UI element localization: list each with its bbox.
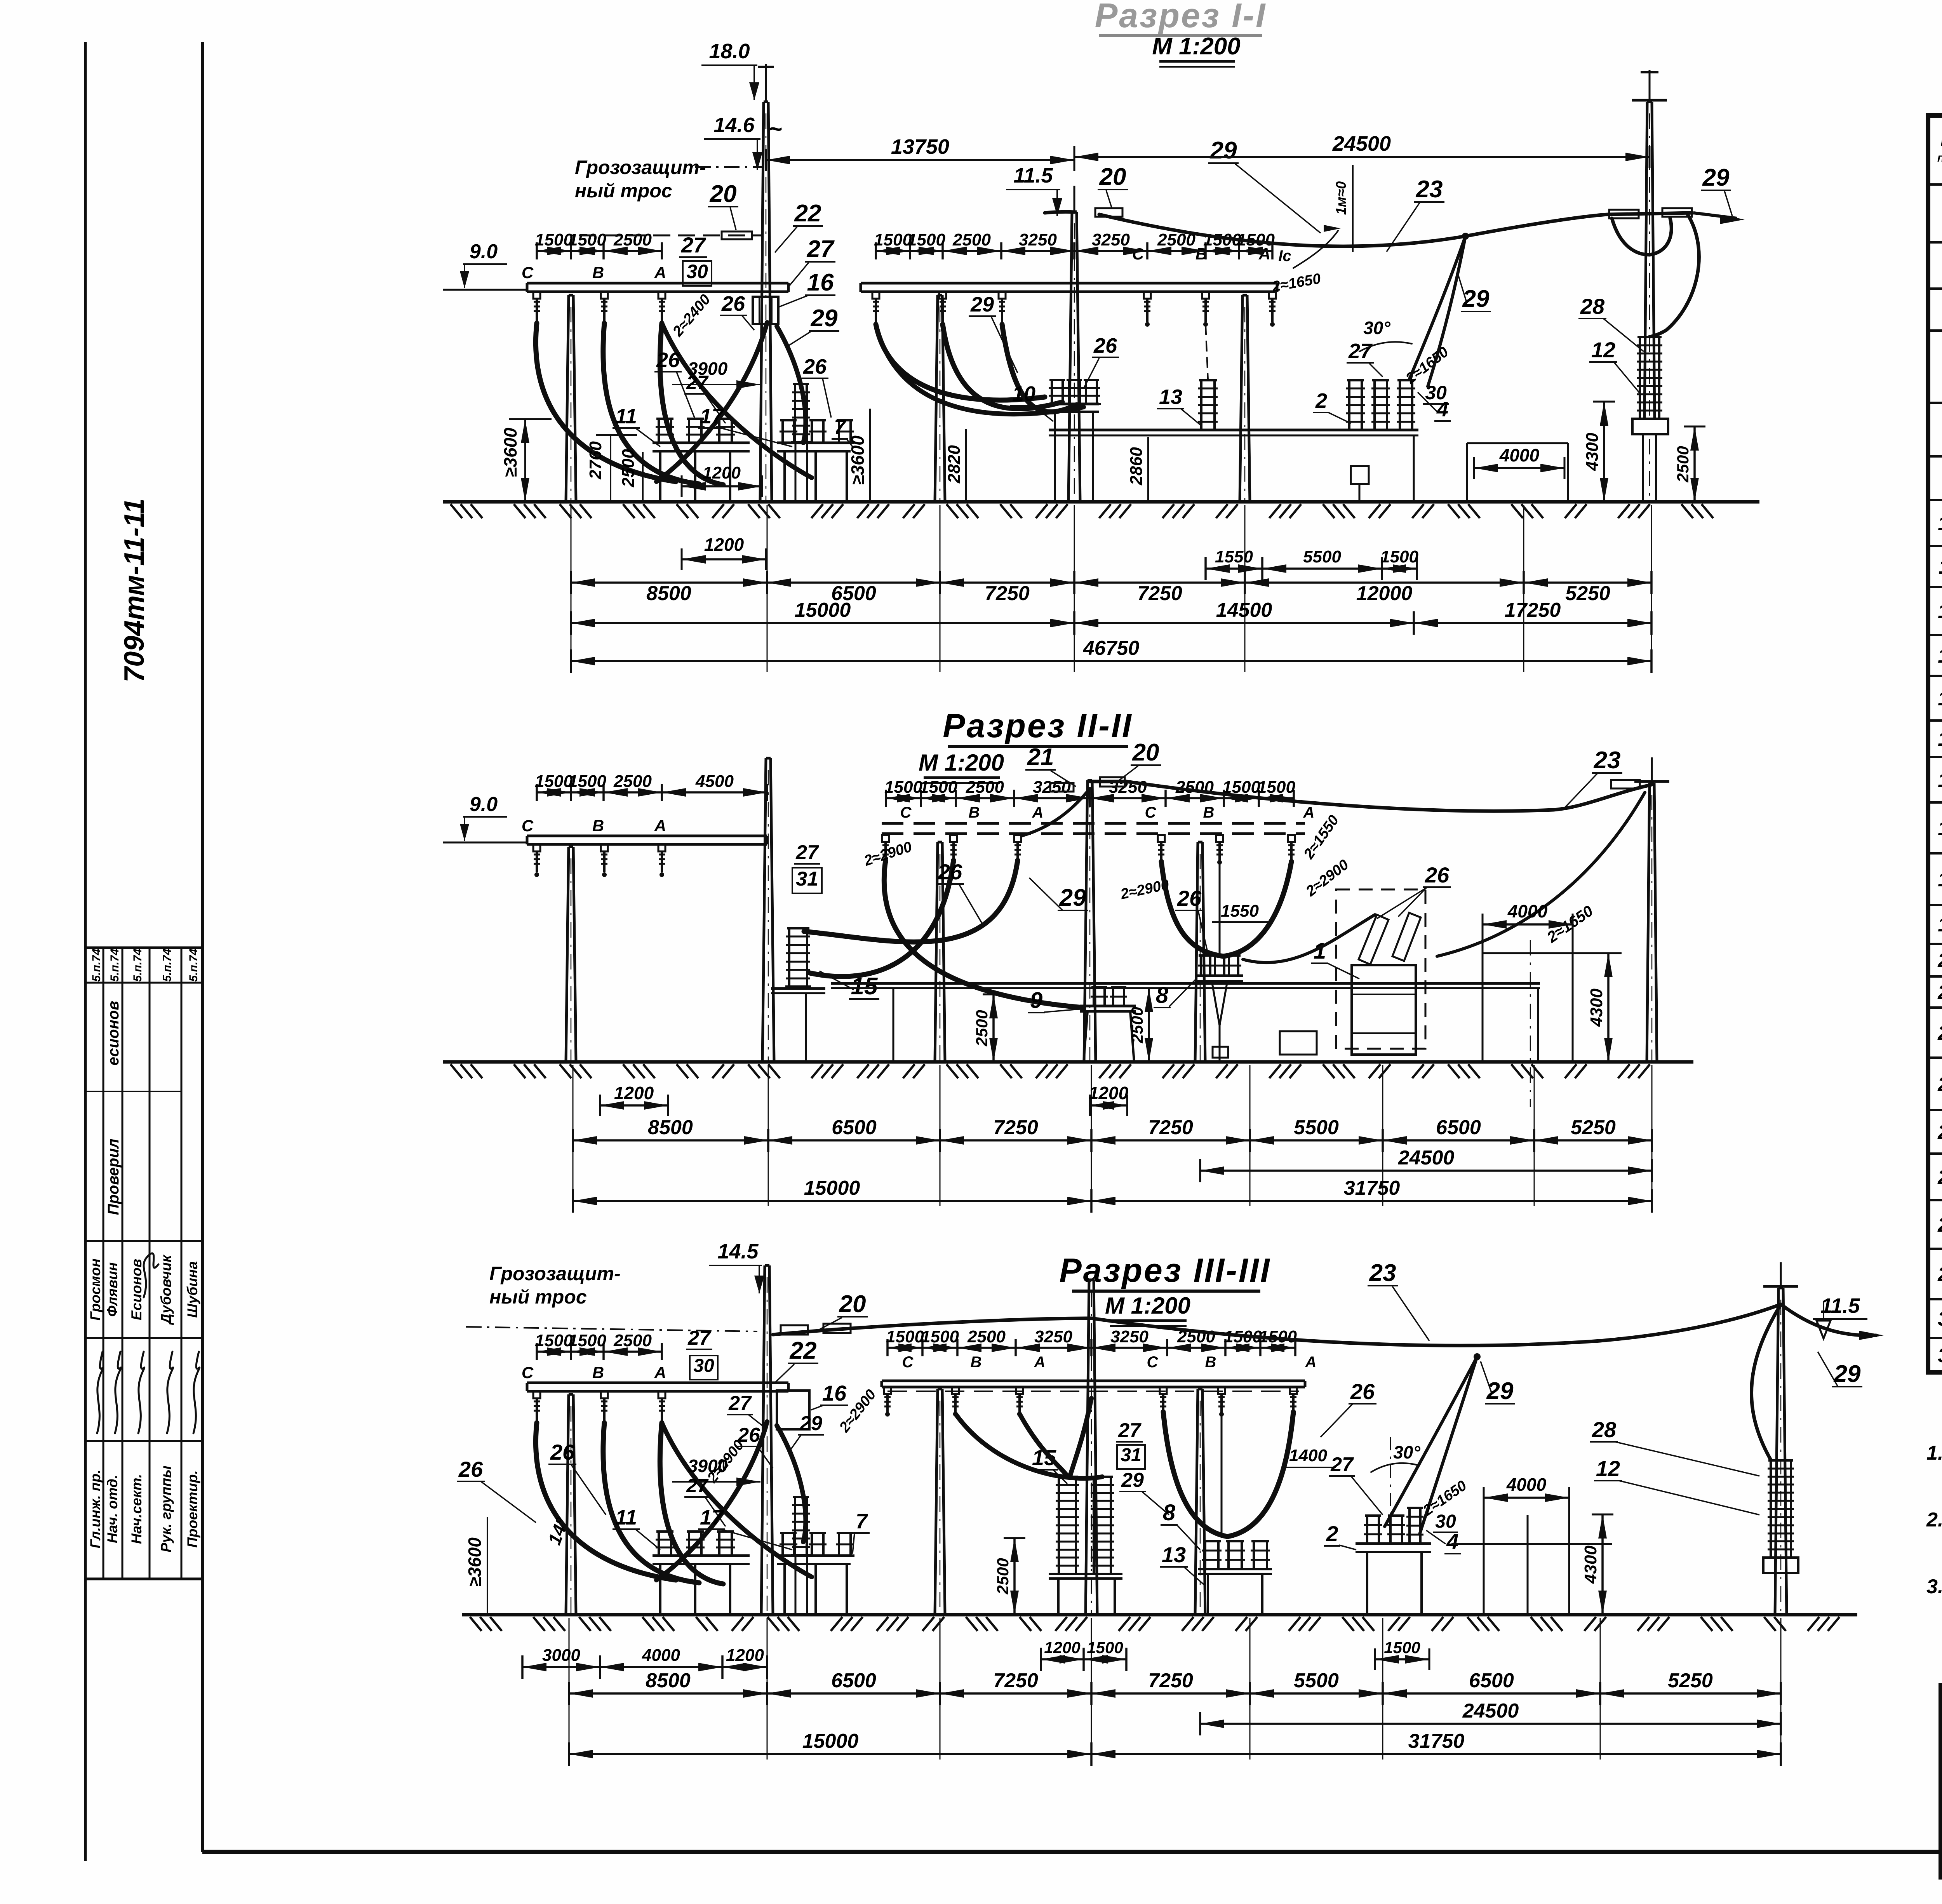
svg-text:1200: 1200 — [704, 534, 744, 555]
svg-text:14.5: 14.5 — [717, 1240, 759, 1263]
svg-text:1500: 1500 — [568, 772, 606, 791]
svg-text:есионов: есионов — [105, 1001, 122, 1066]
svg-text:4000: 4000 — [1499, 445, 1540, 465]
svg-text:23: 23 — [1416, 176, 1443, 203]
svg-text:C: C — [522, 263, 534, 282]
svg-text:5500: 5500 — [1294, 1669, 1339, 1692]
svg-text:10: 10 — [1012, 382, 1035, 406]
svg-text:17250: 17250 — [1505, 599, 1561, 621]
svg-text:26: 26 — [1937, 1121, 1942, 1143]
svg-text:19: 19 — [1938, 914, 1942, 936]
svg-text:4300: 4300 — [1581, 1545, 1600, 1584]
svg-text:1500: 1500 — [1257, 778, 1295, 797]
svg-text:Рук. группы: Рук. группы — [158, 1465, 174, 1552]
svg-text:29: 29 — [1210, 137, 1237, 164]
svg-text:3250: 3250 — [1092, 230, 1130, 249]
svg-text:5500: 5500 — [1294, 1116, 1339, 1139]
svg-text:27: 27 — [807, 236, 835, 263]
svg-text:1200: 1200 — [703, 463, 741, 482]
svg-text:7250: 7250 — [985, 582, 1030, 605]
svg-text:1500: 1500 — [1087, 1638, 1123, 1657]
svg-text:7094тм-11-11: 7094тм-11-11 — [119, 498, 150, 682]
svg-text:26: 26 — [1350, 1379, 1375, 1404]
svg-text:8500: 8500 — [646, 1669, 691, 1692]
svg-text:27: 27 — [1330, 1453, 1354, 1476]
svg-text:2500: 2500 — [613, 772, 652, 791]
svg-text:A: A — [1303, 804, 1315, 821]
svg-text:4000: 4000 — [642, 1646, 680, 1665]
svg-text:М 1:200: М 1:200 — [1105, 1293, 1190, 1319]
svg-text:2500: 2500 — [619, 449, 638, 487]
svg-text:1500: 1500 — [921, 1327, 959, 1346]
svg-text:Нач.сект.: Нач.сект. — [129, 1474, 144, 1544]
svg-text:29: 29 — [1462, 285, 1490, 312]
svg-text:C: C — [522, 1363, 534, 1382]
svg-text:15000: 15000 — [802, 1730, 859, 1753]
svg-text:Дубовчик: Дубовчик — [158, 1254, 174, 1325]
svg-text:7250: 7250 — [1148, 1116, 1193, 1139]
svg-text:31750: 31750 — [1408, 1730, 1465, 1753]
svg-text:9.0: 9.0 — [470, 793, 498, 816]
svg-text:16: 16 — [1938, 769, 1942, 792]
svg-text:29: 29 — [799, 1412, 822, 1435]
svg-text:14.6: 14.6 — [713, 113, 755, 137]
svg-text:1200: 1200 — [1044, 1638, 1080, 1657]
svg-text:ный трос: ный трос — [575, 180, 672, 202]
svg-text:2500: 2500 — [973, 1010, 991, 1046]
svg-text:31: 31 — [1938, 1344, 1942, 1367]
svg-text:≥3600: ≥3600 — [500, 428, 520, 477]
svg-text:31: 31 — [1121, 1445, 1141, 1465]
svg-text:Грозозащит-: Грозозащит- — [575, 157, 706, 178]
svg-text:1500: 1500 — [568, 230, 606, 249]
svg-text:A: A — [654, 1363, 666, 1382]
svg-text:B: B — [592, 816, 604, 835]
svg-text:26: 26 — [550, 1440, 575, 1464]
svg-text:5250: 5250 — [1565, 582, 1610, 605]
svg-text:11.5: 11.5 — [1013, 164, 1053, 187]
svg-text:29: 29 — [1121, 1469, 1144, 1492]
svg-text:29: 29 — [1702, 164, 1730, 191]
svg-text:11.5: 11.5 — [1820, 1294, 1860, 1317]
svg-text:Iс: Iс — [1278, 247, 1291, 265]
svg-text:15: 15 — [1938, 728, 1942, 750]
svg-text:17: 17 — [1938, 817, 1942, 840]
svg-text:8500: 8500 — [648, 1116, 693, 1139]
svg-text:27: 27 — [795, 841, 819, 864]
svg-text:B: B — [1205, 1354, 1216, 1371]
svg-text:31: 31 — [796, 868, 818, 890]
svg-text:1500: 1500 — [535, 230, 573, 249]
svg-text:Разрез I-I: Разрез I-I — [1095, 0, 1267, 35]
svg-text:A: A — [1305, 1354, 1317, 1371]
svg-text:21: 21 — [1027, 744, 1054, 771]
svg-text:15000: 15000 — [804, 1177, 860, 1199]
svg-text:2760: 2760 — [586, 441, 605, 480]
svg-text:26: 26 — [656, 348, 680, 372]
svg-text:5.п.74: 5.п.74 — [90, 949, 103, 982]
svg-text:1500: 1500 — [535, 1331, 573, 1350]
svg-text:1400: 1400 — [1289, 1446, 1327, 1465]
svg-text:1500: 1500 — [907, 230, 945, 249]
svg-text:1м≈0: 1м≈0 — [1333, 181, 1349, 215]
svg-text:C: C — [1147, 1354, 1159, 1371]
svg-text:26: 26 — [458, 1457, 483, 1481]
svg-text:27: 27 — [686, 1475, 709, 1497]
svg-text:15000: 15000 — [795, 599, 851, 621]
svg-text:5.п.74: 5.п.74 — [161, 949, 174, 982]
svg-text:2500: 2500 — [994, 1558, 1012, 1594]
svg-text:20: 20 — [1937, 949, 1942, 972]
svg-text:26: 26 — [803, 355, 827, 378]
svg-text:29: 29 — [1834, 1361, 1861, 1387]
svg-text:B: B — [592, 263, 604, 282]
svg-text:46750: 46750 — [1083, 637, 1140, 660]
svg-text:ный трос: ный трос — [489, 1286, 587, 1308]
svg-text:12: 12 — [1591, 338, 1615, 362]
svg-text:Нач. отд.: Нач. отд. — [104, 1475, 120, 1543]
svg-text:8500: 8500 — [646, 582, 691, 605]
svg-text:1200: 1200 — [1089, 1083, 1129, 1103]
svg-text:1.: 1. — [1926, 1442, 1942, 1464]
svg-text:8: 8 — [1163, 1500, 1176, 1525]
svg-text:24500: 24500 — [1332, 132, 1391, 155]
svg-text:8: 8 — [1156, 983, 1169, 1008]
svg-text:22: 22 — [790, 1337, 817, 1364]
svg-text:C: C — [1145, 804, 1157, 821]
svg-text:1500: 1500 — [1384, 1638, 1420, 1657]
svg-text:6500: 6500 — [831, 1669, 876, 1692]
svg-text:3250: 3250 — [1110, 1327, 1148, 1346]
svg-text:30: 30 — [686, 261, 708, 282]
svg-text:7250: 7250 — [1137, 582, 1182, 605]
svg-text:28: 28 — [1580, 294, 1605, 318]
svg-text:7: 7 — [856, 1510, 868, 1533]
svg-text:23: 23 — [1594, 747, 1621, 774]
svg-text:2500: 2500 — [613, 1331, 652, 1350]
svg-text:31750: 31750 — [1344, 1177, 1400, 1199]
svg-text:C: C — [1132, 245, 1144, 263]
svg-text:3250: 3250 — [1034, 1327, 1072, 1346]
svg-text:26: 26 — [1093, 334, 1117, 357]
svg-text:A: A — [1034, 1354, 1046, 1371]
svg-text:12000: 12000 — [1356, 582, 1413, 605]
svg-text:2: 2 — [1326, 1521, 1338, 1546]
svg-text:28: 28 — [1592, 1417, 1617, 1442]
svg-text:4300: 4300 — [1583, 433, 1602, 471]
svg-text:20: 20 — [1099, 164, 1126, 190]
svg-text:24500: 24500 — [1462, 1700, 1519, 1722]
svg-text:29: 29 — [811, 305, 838, 332]
svg-text:5.п.74: 5.п.74 — [187, 949, 200, 982]
svg-text:5250: 5250 — [1571, 1116, 1616, 1139]
svg-text:23: 23 — [1937, 1073, 1942, 1096]
svg-text:5.п.74: 5.п.74 — [131, 949, 144, 982]
svg-text:30: 30 — [693, 1356, 714, 1376]
svg-text:1500: 1500 — [1380, 547, 1418, 566]
svg-text:3900: 3900 — [688, 1456, 728, 1476]
svg-text:2500: 2500 — [966, 778, 1004, 797]
svg-text:2500: 2500 — [952, 230, 991, 249]
svg-text:13: 13 — [1159, 385, 1182, 409]
svg-text:30: 30 — [1435, 1511, 1456, 1532]
svg-text:B: B — [969, 804, 980, 821]
svg-text:12: 12 — [1938, 600, 1942, 623]
svg-text:7250: 7250 — [993, 1669, 1038, 1692]
svg-text:13750: 13750 — [891, 135, 949, 158]
svg-text:1500: 1500 — [535, 772, 573, 791]
svg-text:Гл.инж. пр.: Гл.инж. пр. — [87, 1470, 103, 1549]
svg-text:Есионов: Есионов — [129, 1259, 144, 1320]
svg-text:29: 29 — [970, 293, 994, 316]
svg-text:27: 27 — [686, 372, 709, 393]
svg-text:26: 26 — [737, 1424, 760, 1446]
svg-text:29: 29 — [1486, 1378, 1514, 1405]
svg-text:28: 28 — [1937, 1214, 1942, 1236]
svg-text:14500: 14500 — [1216, 599, 1272, 621]
svg-text:13: 13 — [1162, 1542, 1186, 1567]
svg-text:23: 23 — [1369, 1260, 1396, 1286]
svg-text:7250: 7250 — [993, 1116, 1038, 1139]
svg-text:5500: 5500 — [1303, 547, 1341, 566]
svg-text:1550: 1550 — [1221, 902, 1259, 921]
svg-text:27: 27 — [681, 233, 706, 257]
svg-text:Разрез II-II: Разрез II-II — [943, 707, 1133, 745]
svg-text:2: 2 — [1315, 389, 1327, 412]
svg-text:Гросмон: Гросмон — [87, 1258, 103, 1321]
svg-text:6500: 6500 — [1469, 1669, 1514, 1692]
svg-text:4300: 4300 — [1587, 989, 1606, 1027]
svg-text:B: B — [971, 1354, 982, 1371]
svg-text:16: 16 — [822, 1381, 847, 1405]
svg-text:9: 9 — [1030, 988, 1042, 1013]
svg-text:4000: 4000 — [1506, 1474, 1547, 1495]
svg-text:29: 29 — [1059, 884, 1086, 911]
svg-text:3000: 3000 — [542, 1646, 580, 1665]
svg-text:М 1:200: М 1:200 — [1152, 33, 1240, 60]
svg-text:A: A — [654, 816, 666, 835]
svg-text:7250: 7250 — [1148, 1669, 1193, 1692]
svg-text:B: B — [1203, 804, 1215, 821]
svg-text:2500: 2500 — [967, 1327, 1006, 1346]
svg-text:6500: 6500 — [832, 1116, 877, 1139]
svg-text:22: 22 — [1937, 1022, 1942, 1044]
svg-text:≥3600: ≥3600 — [465, 1537, 485, 1587]
svg-text:Флявин: Флявин — [104, 1262, 120, 1317]
svg-text:14: 14 — [1938, 687, 1942, 710]
svg-text:13: 13 — [1938, 645, 1942, 667]
svg-text:21: 21 — [1937, 981, 1942, 1004]
svg-text:18.0: 18.0 — [709, 40, 750, 63]
svg-text:7: 7 — [834, 416, 847, 439]
svg-text:1550: 1550 — [1215, 547, 1253, 566]
svg-text:26: 26 — [721, 292, 745, 315]
svg-text:11: 11 — [615, 1506, 637, 1529]
svg-text:26: 26 — [938, 860, 962, 884]
svg-text:2860: 2860 — [1127, 447, 1146, 486]
svg-text:27: 27 — [687, 1327, 711, 1349]
svg-text:4: 4 — [1436, 398, 1448, 421]
svg-text:2.: 2. — [1926, 1509, 1942, 1531]
svg-text:17: 17 — [700, 1506, 724, 1529]
svg-text:2820: 2820 — [945, 445, 964, 484]
svg-text:30°: 30° — [1393, 1442, 1420, 1462]
svg-text:C: C — [522, 816, 534, 835]
svg-text:27: 27 — [1118, 1419, 1142, 1442]
svg-text:20: 20 — [1132, 739, 1159, 766]
svg-text:1500: 1500 — [886, 1327, 924, 1346]
svg-text:18: 18 — [1938, 868, 1942, 891]
svg-text:22: 22 — [794, 200, 821, 227]
svg-text:6500: 6500 — [1436, 1116, 1481, 1139]
svg-text:Проверил: Проверил — [105, 1138, 122, 1215]
svg-text:5250: 5250 — [1668, 1669, 1713, 1692]
svg-text:12: 12 — [1596, 1456, 1620, 1481]
svg-text:≥3600: ≥3600 — [847, 435, 868, 485]
svg-text:поз.: поз. — [1937, 151, 1942, 164]
svg-text:3.: 3. — [1926, 1575, 1942, 1598]
svg-text:Разрез III-III: Разрез III-III — [1059, 1252, 1271, 1289]
svg-text:Проектир.: Проектир. — [184, 1470, 200, 1548]
svg-text:9.0: 9.0 — [470, 240, 498, 263]
svg-text:27: 27 — [728, 1392, 752, 1415]
svg-text:30°: 30° — [1363, 318, 1390, 338]
svg-text:17: 17 — [700, 405, 724, 428]
svg-text:20: 20 — [839, 1291, 866, 1317]
svg-text:1500: 1500 — [568, 1331, 606, 1350]
svg-text:2500: 2500 — [1674, 446, 1692, 482]
svg-text:C: C — [902, 1354, 914, 1371]
svg-text:Шубина: Шубина — [184, 1261, 200, 1318]
svg-text:11: 11 — [615, 405, 637, 428]
svg-text:26: 26 — [1425, 863, 1450, 887]
svg-text:27: 27 — [1937, 1166, 1942, 1189]
svg-text:29: 29 — [1937, 1263, 1942, 1286]
svg-text:C: C — [900, 804, 912, 821]
svg-text:3250: 3250 — [1019, 230, 1057, 249]
svg-text:10: 10 — [1938, 512, 1942, 535]
svg-text:20: 20 — [710, 181, 737, 207]
svg-text:24500: 24500 — [1398, 1147, 1455, 1169]
svg-text:11: 11 — [1939, 556, 1942, 578]
svg-text:4000: 4000 — [1507, 901, 1548, 921]
svg-text:4500: 4500 — [695, 772, 734, 791]
svg-text:М 1:200: М 1:200 — [919, 750, 1004, 776]
svg-text:2500: 2500 — [613, 230, 652, 249]
svg-text:1500: 1500 — [874, 230, 912, 249]
svg-text:1500: 1500 — [919, 778, 957, 797]
svg-text:Грозозащит-: Грозозащит- — [489, 1263, 621, 1284]
svg-text:5.п.74: 5.п.74 — [108, 949, 121, 982]
svg-text:B: B — [592, 1363, 604, 1382]
svg-text:~: ~ — [768, 116, 782, 142]
svg-text:2500: 2500 — [1128, 1007, 1146, 1043]
svg-text:1200: 1200 — [614, 1083, 654, 1103]
svg-text:A: A — [1032, 804, 1044, 821]
svg-text:30: 30 — [1938, 1308, 1942, 1330]
svg-text:A: A — [654, 263, 666, 282]
svg-text:1200: 1200 — [726, 1646, 764, 1665]
svg-text:1500: 1500 — [884, 778, 922, 797]
svg-text:16: 16 — [807, 269, 834, 296]
svg-text:NN: NN — [1940, 136, 1942, 149]
svg-text:26: 26 — [1177, 886, 1202, 910]
